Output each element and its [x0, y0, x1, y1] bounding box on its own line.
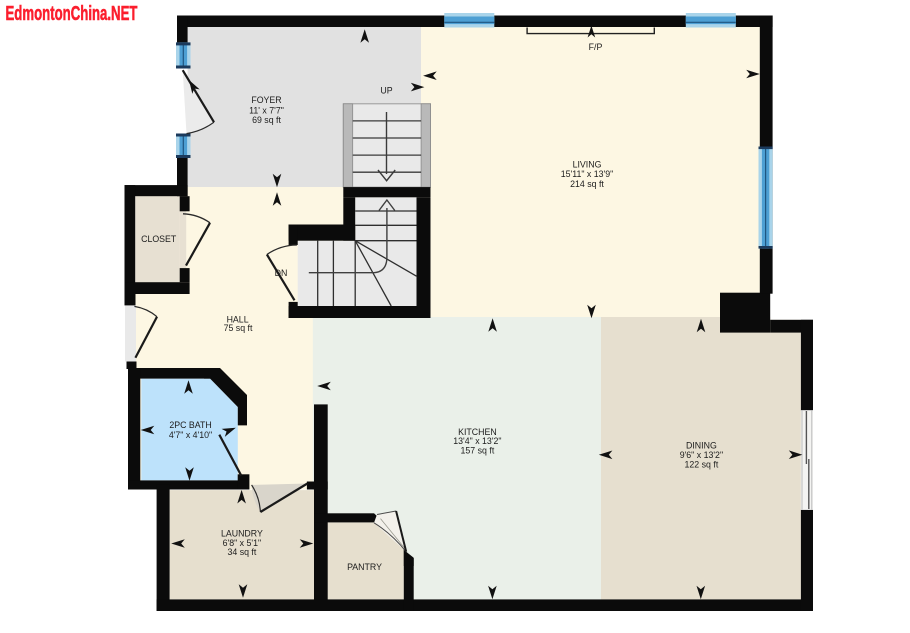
svg-text:157 sq ft: 157 sq ft	[461, 445, 495, 455]
svg-text:9'6" x 13'2": 9'6" x 13'2"	[680, 450, 723, 460]
svg-text:2PC BATH: 2PC BATH	[169, 420, 211, 430]
svg-text:FOYER: FOYER	[251, 95, 281, 105]
svg-text:4'7" x 4'10": 4'7" x 4'10"	[169, 430, 212, 440]
svg-text:LIVING: LIVING	[573, 160, 602, 170]
svg-text:122 sq ft: 122 sq ft	[685, 460, 719, 470]
svg-text:69 sq ft: 69 sq ft	[252, 115, 281, 125]
svg-text:UP: UP	[380, 86, 392, 96]
svg-text:34 sq ft: 34 sq ft	[227, 547, 256, 557]
svg-text:PANTRY: PANTRY	[347, 562, 382, 572]
svg-text:15'11" x 13'9": 15'11" x 13'9"	[561, 169, 614, 179]
svg-text:F/P: F/P	[589, 42, 603, 52]
svg-text:DINING: DINING	[686, 440, 717, 450]
svg-text:CLOSET: CLOSET	[141, 234, 177, 244]
svg-text:214 sq ft: 214 sq ft	[570, 179, 604, 189]
svg-text:DN: DN	[275, 268, 288, 278]
svg-text:11' x 7'7": 11' x 7'7"	[249, 105, 284, 115]
svg-text:EdmontonChina.NET: EdmontonChina.NET	[6, 2, 138, 24]
svg-text:75 sq ft: 75 sq ft	[224, 323, 253, 333]
